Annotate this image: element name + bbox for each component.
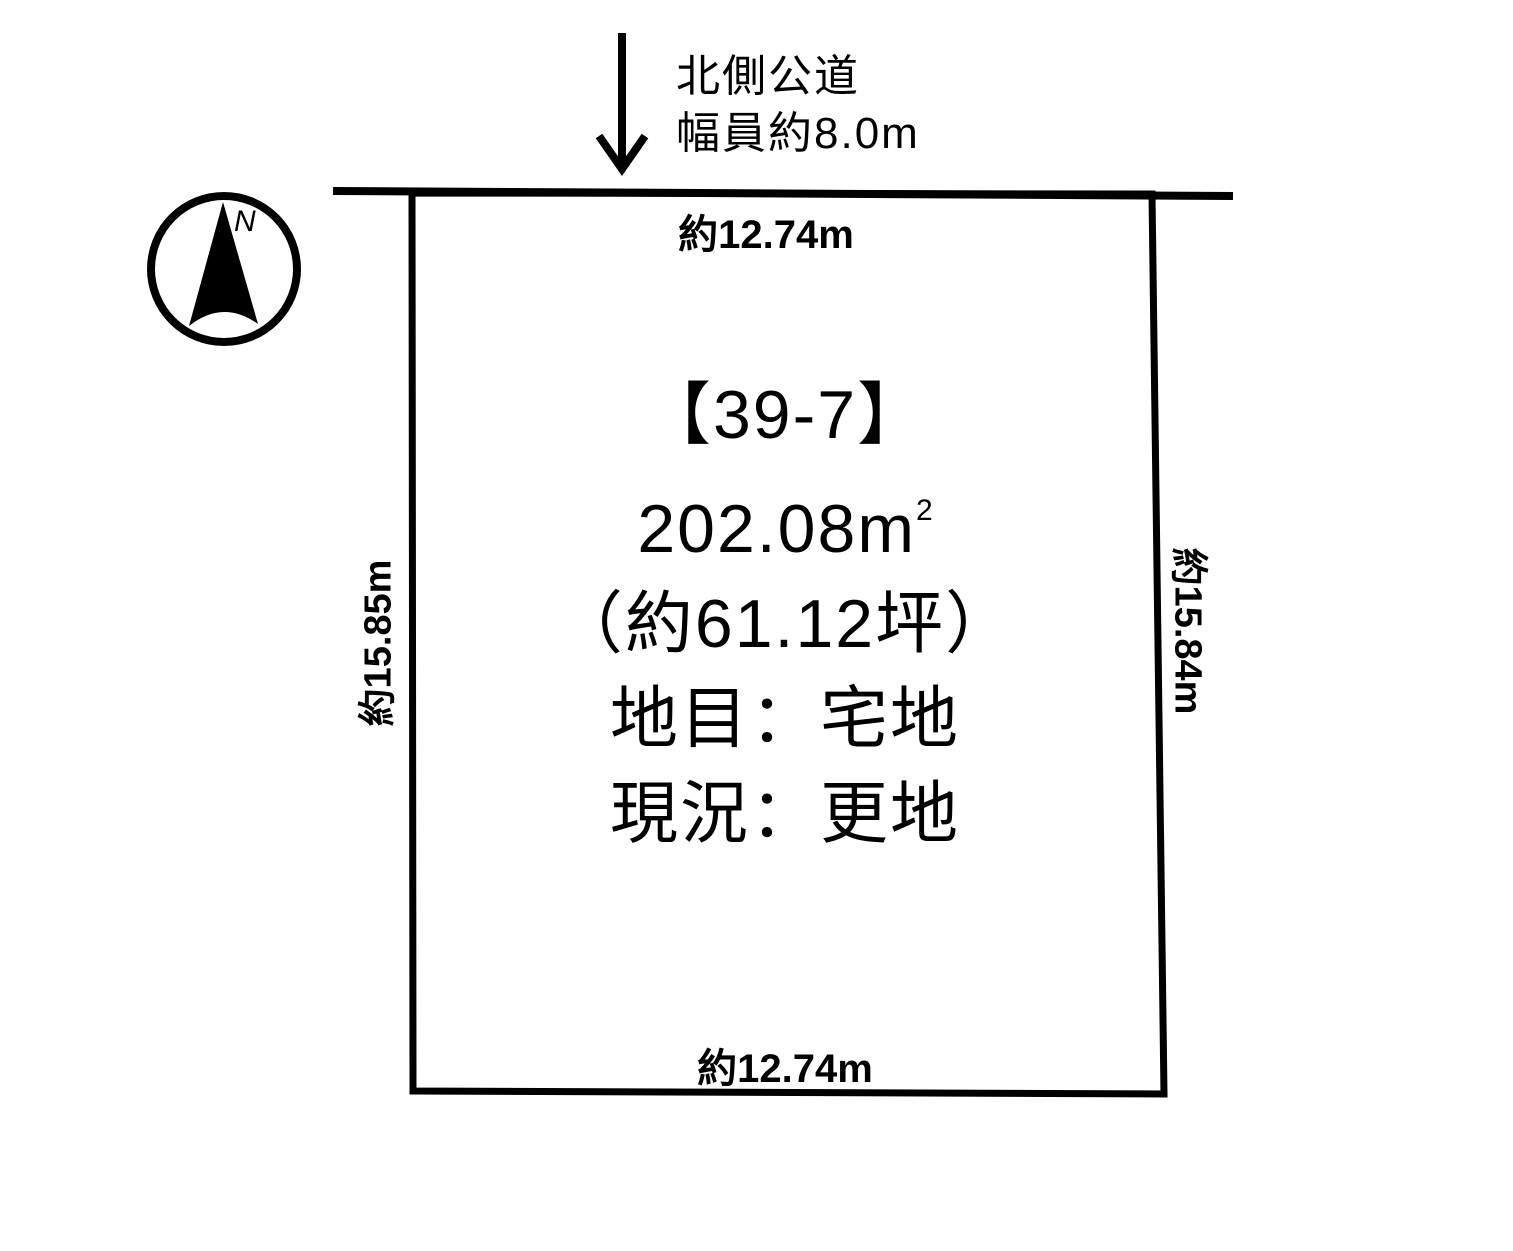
dimension-top: 約12.74m xyxy=(678,202,854,260)
compass: N xyxy=(151,196,297,342)
road-label-line2: 幅員約8.0m xyxy=(676,105,920,162)
road-arrow-icon xyxy=(599,33,645,169)
lot-number: 【39-7】 xyxy=(555,368,1015,463)
road-label-line1: 北側公道 xyxy=(676,48,920,105)
current-status: 現況：更地 xyxy=(555,767,1015,862)
land-plot-diagram: N 北側公道 幅員約8.0m 約12.74m 約12.74m 約15.85m 約… xyxy=(0,0,1513,1251)
plot-info: 【39-7】 202.08m2 （約61.12坪） 地目：宅地 現況：更地 xyxy=(555,368,1015,862)
road-label: 北側公道 幅員約8.0m xyxy=(676,48,920,162)
area-tsubo: （約61.12坪） xyxy=(555,577,1015,672)
area-value: 202.08m xyxy=(637,491,916,567)
dimension-bottom: 約12.74m xyxy=(697,1036,873,1094)
area-superscript: 2 xyxy=(916,494,933,527)
dimension-left: 約15.85m xyxy=(347,560,402,727)
north-label: N xyxy=(234,205,256,238)
land-category: 地目：宅地 xyxy=(555,672,1015,767)
area-square-meters: 202.08m2 xyxy=(555,463,1015,577)
dimension-right: 約15.84m xyxy=(1165,548,1220,715)
